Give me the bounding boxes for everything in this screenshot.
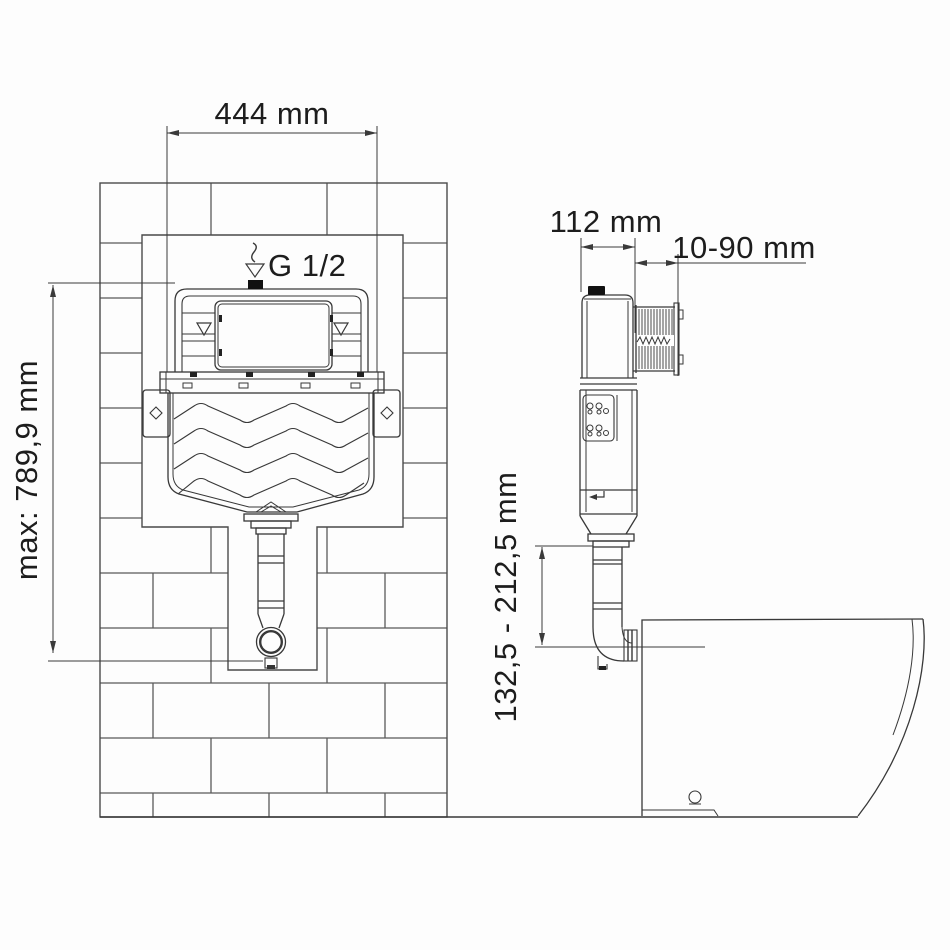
wall-range-dimension-label: 10-90 mm: [672, 230, 816, 265]
outlet-coupling: [624, 630, 637, 661]
inlet-thread-label: G 1/2: [268, 248, 346, 283]
wall-sleeve-bellows: [633, 303, 683, 375]
flush-pipe-front: [244, 514, 298, 669]
cistern-front-view: [143, 280, 400, 669]
outlet-height-dimension-label: 132,5 - 212,5 mm: [488, 472, 523, 723]
cistern-side-view: [580, 286, 683, 670]
mounting-plate: [583, 395, 617, 441]
max-height-dimension-label: max: 789,9 mm: [9, 360, 44, 580]
dim-max-height: [48, 283, 263, 661]
access-window: [215, 301, 333, 370]
wall-recess-outline: [142, 235, 403, 670]
side-body-lower: [580, 378, 637, 534]
water-level-waves: [174, 404, 368, 498]
flush-direction-arrow-icon: [589, 491, 604, 500]
water-inlet-cap: [248, 280, 263, 289]
toilet-fixing-hole: [689, 791, 701, 803]
water-level-mark-right-icon: [334, 323, 348, 335]
mounting-rail: [160, 372, 384, 393]
side-body-upper: [582, 286, 633, 378]
dim-outlet-height: [535, 546, 705, 647]
installation-diagram: 444 mm max: 789,9 mm G 1/2 112 mm 10-90 …: [0, 0, 950, 950]
diagram-svg: 444 mm max: 789,9 mm G 1/2 112 mm 10-90 …: [0, 0, 950, 950]
dim-wall-range: [635, 254, 806, 376]
depth-dimension-label: 112 mm: [550, 204, 663, 239]
toilet-profile: [642, 619, 924, 816]
side-inlet-cap: [588, 286, 605, 295]
flush-pipe-side: [588, 534, 637, 670]
flush-elbow-side: [593, 627, 624, 661]
wall-bracket-left: [143, 390, 170, 437]
wall-bracket-right: [373, 390, 400, 437]
dim-depth-112: [581, 238, 635, 333]
water-level-mark-left-icon: [197, 323, 211, 335]
inlet-symbol-icon: [246, 243, 264, 277]
width-dimension-label: 444 mm: [215, 96, 330, 131]
cistern-tank: [168, 393, 374, 512]
